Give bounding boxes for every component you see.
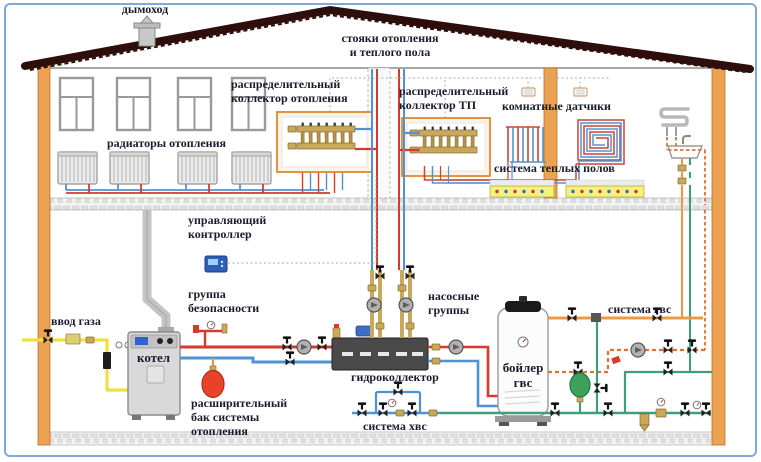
label-cold-water: система хвс	[363, 419, 427, 433]
diagram-canvas	[0, 0, 761, 462]
label-room-sensors: комнатные датчики	[502, 99, 611, 113]
label-expansion-tank: расширительный бак системы отопления	[191, 396, 287, 438]
label-radiators: радиаторы отопления	[107, 136, 226, 150]
label-dhw-boiler: бойлер гвс	[503, 360, 544, 391]
label-dhw-system: система гвс	[608, 302, 671, 316]
heating-collector-icon	[277, 112, 377, 172]
label-floor-heating: система теплых полов	[494, 161, 615, 175]
label-chimney: дымоход	[122, 2, 168, 16]
label-safety-group: группа безопасности	[188, 287, 259, 315]
right-wall	[712, 68, 725, 445]
left-wall	[38, 64, 50, 445]
label-controller: управляющий контроллер	[188, 213, 266, 241]
gas-meter-icon	[66, 334, 80, 344]
middle-column	[544, 68, 557, 198]
label-boiler: котел	[137, 350, 170, 365]
label-risers: стояки отопления и теплого пола	[341, 31, 438, 59]
label-gas-inlet: ввод газа	[51, 314, 101, 328]
heating-system-diagram: дымоход стояки отопления и теплого пола …	[0, 0, 761, 462]
controller-icon	[205, 256, 227, 272]
gas-filter-icon	[103, 352, 111, 369]
label-pump-groups: насосные группы	[428, 289, 479, 317]
label-tp-collector: распределительный коллектор ТП	[399, 84, 508, 112]
label-hydrocollector: гидроколлектор	[351, 370, 439, 384]
floor-heating-strips	[490, 180, 644, 197]
label-heating-collector: распределительный коллектор отопления	[231, 77, 348, 105]
